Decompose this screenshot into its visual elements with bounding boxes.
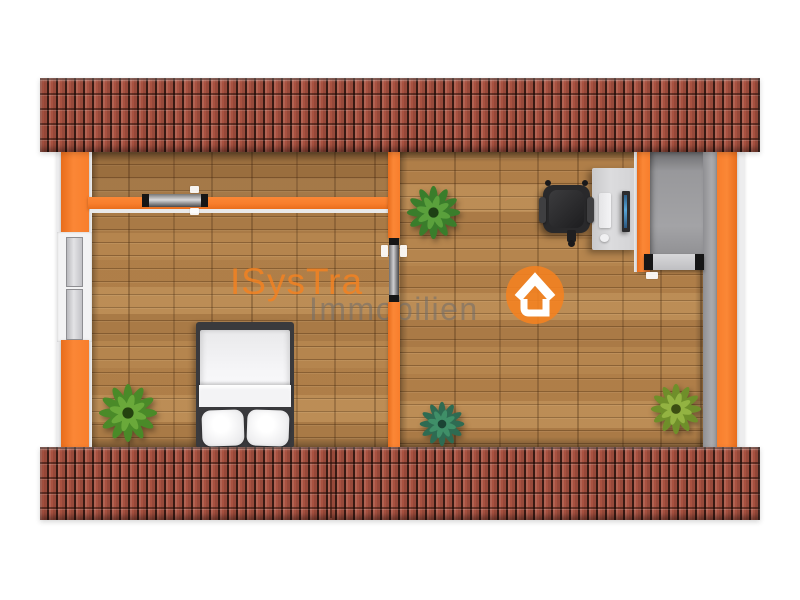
door-bracket	[190, 186, 199, 193]
monitor	[622, 191, 630, 232]
stair-side-wall	[703, 152, 717, 447]
stair-hook	[646, 272, 658, 279]
bed-pillow-left	[201, 409, 244, 446]
door-cap	[201, 194, 208, 207]
left-wall-lower	[61, 340, 89, 447]
door-cap	[142, 194, 149, 207]
potted-plant-office-bottom	[419, 401, 465, 447]
chair-wheel	[545, 180, 551, 186]
divider-wall-lower	[388, 302, 400, 447]
double-bed	[196, 322, 294, 448]
potted-plant-office-top	[406, 185, 461, 240]
hallway-wall	[88, 197, 400, 209]
keyboard	[599, 193, 611, 228]
chair-armrest-right	[587, 197, 594, 223]
step-end-cap-left	[644, 254, 653, 270]
hallway-wall-baseboard	[90, 209, 398, 213]
potted-plant-bedroom	[98, 383, 158, 443]
left-wall-upper	[61, 152, 89, 234]
staircase-opening	[650, 152, 703, 258]
chair-wheel	[582, 180, 588, 186]
monitor-screen	[624, 195, 627, 228]
door-handle-left	[381, 245, 388, 257]
door-bracket	[190, 208, 199, 215]
roof-bottom-seam	[330, 449, 332, 518]
right-wall	[717, 152, 737, 447]
floorplan-canvas: ISysTra Immobilien	[0, 0, 800, 600]
chair-armrest-left	[539, 197, 546, 223]
step-end-cap-right	[695, 254, 704, 270]
door-handle-right	[400, 245, 407, 257]
chair-wheel	[568, 240, 575, 247]
chair-cushion	[549, 190, 584, 228]
bed-pillow-right	[246, 409, 289, 446]
potted-plant-office-right	[650, 383, 702, 435]
hallway-sliding-door	[142, 194, 208, 207]
office-chair	[543, 185, 590, 233]
mouse	[600, 234, 609, 242]
divider-wall-upper	[388, 152, 400, 238]
roof-top-seam	[470, 80, 472, 150]
roof-bottom	[40, 447, 760, 520]
door-cap	[389, 295, 399, 302]
window-glass-upper	[66, 237, 83, 287]
window-glass-lower	[66, 289, 83, 340]
roof-top	[40, 78, 760, 152]
bed-folded-sheet	[199, 385, 291, 407]
divider-sliding-door	[389, 238, 399, 302]
door-cap	[389, 238, 399, 245]
